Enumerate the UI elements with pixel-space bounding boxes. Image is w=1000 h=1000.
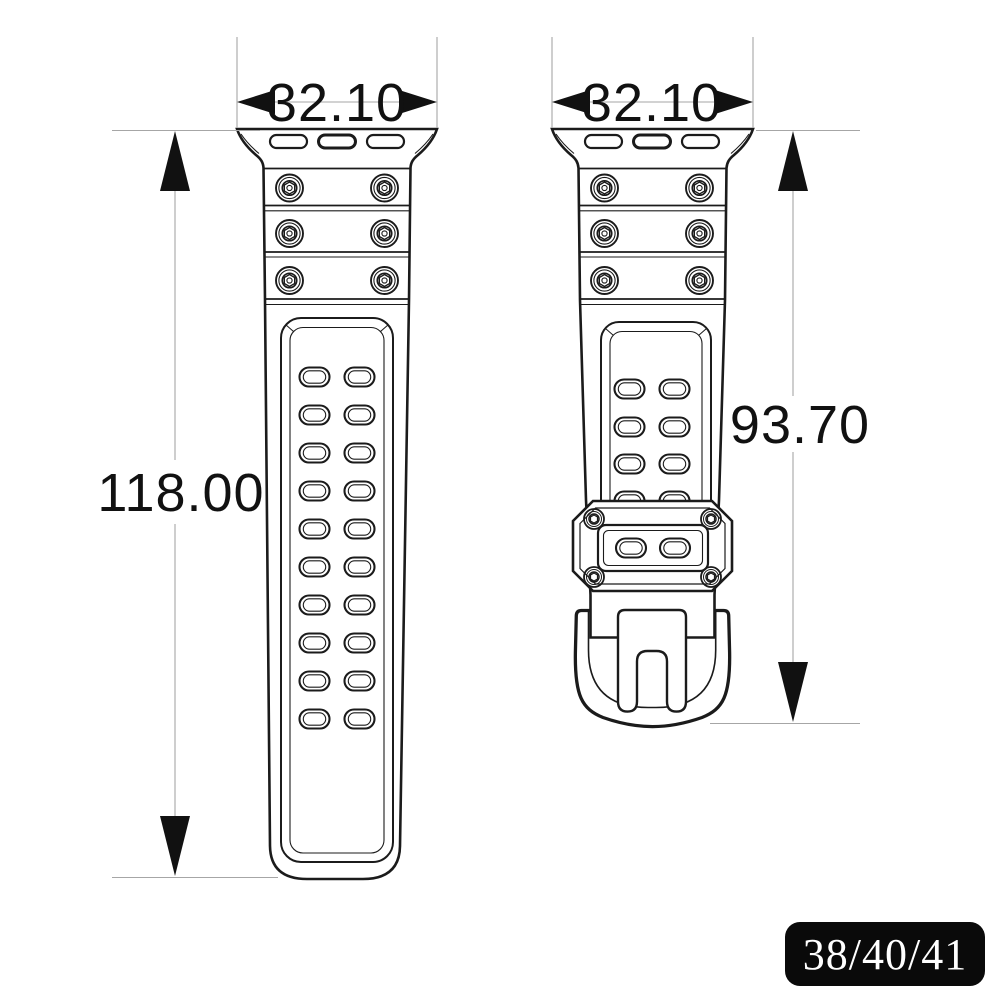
- dim-right-length: 93.70: [710, 131, 870, 724]
- dim-left-width: 32.10: [237, 37, 437, 133]
- right-strap-drawing: [552, 129, 753, 727]
- arrow-up-icon: [778, 131, 808, 191]
- watch-band-diagram: 32.10 32.10 118.00 93.70 38/40/41: [0, 0, 1000, 1000]
- keeper-window-outer: [598, 525, 708, 571]
- arrow-up-icon: [160, 131, 190, 191]
- left-strap-drawing: [237, 129, 437, 879]
- dim-left-length-label: 118.00: [97, 463, 264, 523]
- dim-right-width-label: 32.10: [582, 73, 722, 133]
- technical-drawing-canvas: 32.10 32.10 118.00 93.70 38/40/41: [0, 0, 1000, 1000]
- dim-right-width: 32.10: [552, 37, 753, 133]
- keeper-loop: [573, 501, 732, 591]
- dim-left-width-label: 32.10: [267, 73, 407, 133]
- dim-left-length: 118.00: [97, 131, 278, 878]
- arrow-down-icon: [778, 662, 808, 722]
- buckle-tongue: [618, 610, 686, 712]
- size-badge-label: 38/40/41: [803, 930, 967, 979]
- dim-right-length-label: 93.70: [730, 395, 870, 455]
- left-strap-outline: [237, 129, 437, 879]
- arrow-down-icon: [160, 816, 190, 876]
- size-badge: 38/40/41: [785, 922, 985, 986]
